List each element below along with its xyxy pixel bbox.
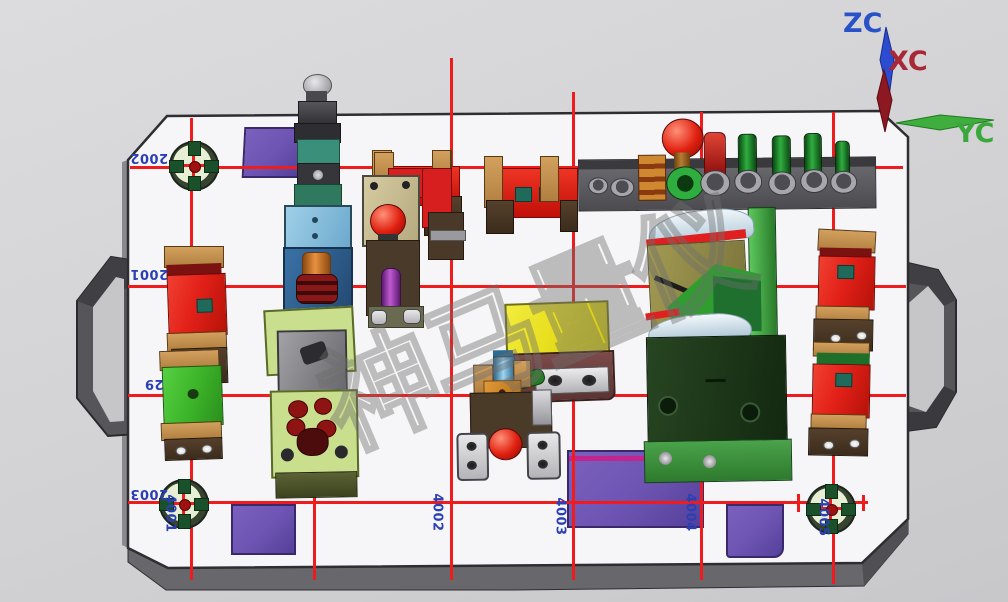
main-gauge-body[interactable] [638,199,793,487]
screw [703,455,716,468]
screw [740,402,760,422]
purple-block[interactable] [726,504,784,558]
green-rest-unit[interactable] [260,305,359,503]
clamp-base [164,437,223,461]
grid-tick [797,494,800,512]
rack-green-pin [835,141,850,175]
rest-foot [275,471,357,498]
clamp-green-left[interactable] [155,347,229,463]
gauge-dark-body [646,335,788,447]
gauge-foot [644,439,793,484]
screw-hole [823,441,834,450]
rack-green-pin [772,135,791,175]
base-pad [371,310,387,325]
grid-label-v: 4004 [683,493,698,533]
grid-label-v: 4002 [430,493,445,533]
screw [335,445,348,458]
tower-pin [313,170,323,180]
red-boss [288,400,308,418]
support-base [486,200,514,234]
screw [281,448,294,461]
grid-label-h: 29 [140,376,168,391]
clamp-knob [488,428,523,461]
rest-gray-box [277,329,348,392]
round-locator[interactable] [169,141,219,191]
round-locator[interactable] [806,484,856,534]
clamp-knob [370,204,406,238]
screw-hole [201,444,212,453]
pad-hole [538,459,548,468]
red-boss-center [296,428,328,457]
rest-pad [270,389,360,479]
clamp-dot [187,389,198,399]
locator-tab [188,176,201,191]
rack-socket [588,177,608,194]
locator-tab [178,514,191,529]
screw-hole [175,446,186,455]
clamp-face [162,365,224,427]
tower-lightblue-box [284,205,352,253]
screw [402,181,410,189]
support-chip [515,187,532,202]
screw [659,452,672,465]
locator-tab [841,503,856,516]
clamp-chip [835,373,852,387]
clamp-red-right-upper[interactable] [809,225,881,352]
base-pad [526,431,561,480]
clamp-arm [430,230,466,241]
grid-line-h-2003 [128,501,868,504]
support-base [560,200,578,232]
screw [658,396,678,416]
pad-hole [537,440,547,449]
cad-viewport[interactable]: 2002 2001 29 2003 4001 4002 4003 4004 40… [0,0,1008,602]
rack-socket [830,171,857,194]
tower-dot [312,217,318,223]
locator-tab [188,141,201,156]
grid-label-v: 4003 [553,497,568,537]
tower-dot [312,233,318,239]
red-support-unit[interactable] [478,152,582,236]
rack-socket [700,170,730,196]
side-rail [532,389,553,425]
rack-bar-edge [579,157,875,169]
rack-copper-bushing [638,155,666,201]
grid-label-v: 4005 [816,498,831,538]
screw-hole [856,331,867,340]
clamp-red-right-lower[interactable] [805,339,877,458]
red-boss [314,398,332,415]
center-clamp[interactable] [451,347,585,481]
grid-label-h: 2001 [128,266,170,281]
locator-tab [178,479,191,494]
toggle-clamp[interactable] [358,148,468,330]
rack-green-ring [666,166,704,200]
gauge-mark [706,379,726,382]
clamp-base [368,306,424,328]
base-pad [456,433,489,482]
strip-hole [582,375,596,386]
rack-socket [800,169,828,193]
locator-center-pin [189,161,201,173]
axis-x-label: XC [888,46,928,77]
axis-z-label: ZC [843,8,882,39]
base-pad [403,309,421,324]
grid-label-h: 2002 [128,150,170,165]
clamp-base [808,427,868,456]
locator-tab [204,160,219,173]
grid-tick [862,495,865,511]
clamp-chip [196,298,212,313]
pad-hole [467,461,477,470]
clamp-face [818,256,876,311]
locator-tab [194,498,209,511]
clamp-face [812,363,871,418]
rest-handle [299,340,329,365]
clamp-tower[interactable] [280,72,360,310]
grid-label-v: 4001 [163,494,178,534]
clamp-face [167,273,228,337]
locator-tab [169,160,184,173]
screw [370,182,378,190]
axis-y-label: YC [956,118,994,149]
pin-rack[interactable] [575,110,876,213]
pad-hole [466,442,476,451]
tower-red-rings [296,274,338,304]
support-pillar [540,156,559,202]
screw-hole [849,439,860,448]
grid-line-h-2001 [128,285,906,288]
purple-block[interactable] [231,504,296,555]
locator-center-pin [179,499,191,511]
clamp-chip [837,265,854,279]
